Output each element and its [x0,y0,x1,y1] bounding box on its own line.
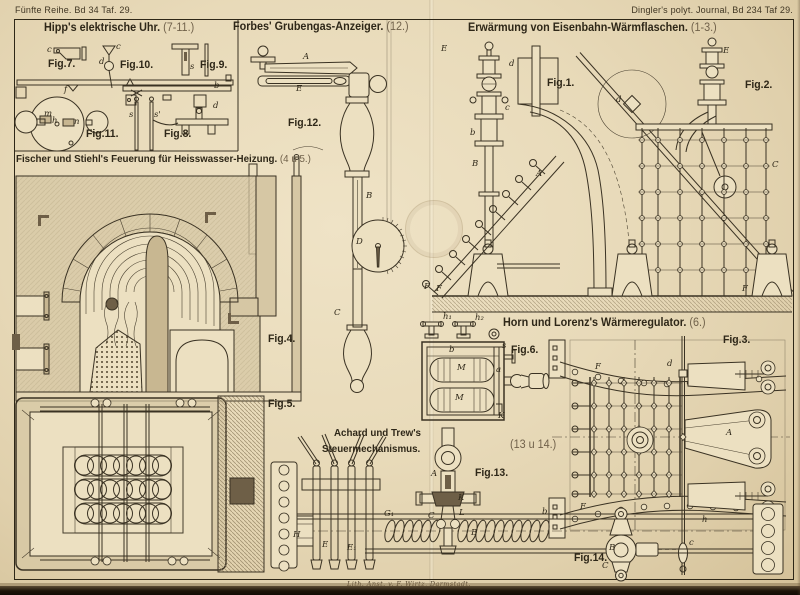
part-label: F [595,363,601,372]
header-series: Fünfte Reihe. Bd 34 Taf. 29. [15,5,133,15]
part-label: s [502,342,506,351]
fig11-drawing [15,97,108,151]
section-title-erwaermung: Erwärmung von Eisenbahn-Wärmflaschen. (1… [468,22,717,34]
part-label: F [424,283,430,292]
part-label: f [64,86,67,95]
fig3-label: Fig.3. [723,334,750,346]
part-label: b [470,129,475,138]
fig4-label: Fig.4. [268,333,295,345]
section-title-achard-line1: Achard und Trew's [334,428,421,439]
part-label: A [431,470,437,479]
fig13-label: Fig.13. [475,467,508,479]
part-label: B [366,192,372,201]
part-label: A [536,170,542,179]
section-title-horn: Horn und Lorenz's Wärmeregulator. (6.) [503,317,706,329]
part-label: s' [154,111,161,120]
page-edge-shadow [0,586,800,595]
part-label: E [296,85,302,94]
section-title-fischer: Fischer und Stiehl's Feuerung für Heissw… [16,154,311,165]
part-label: B [471,529,477,538]
fig1-label: Fig.1. [547,77,574,89]
section-title-forbes: Forbes' Grubengas-Anzeiger. (12.) [233,21,409,33]
part-label: h [702,516,707,525]
part-label: C [772,161,779,170]
part-label: A [303,53,309,62]
part-label: d [616,96,621,105]
fig12-label: Fig.12. [288,117,321,129]
part-label: d [213,102,218,111]
section-ref-achard: (13 u 14.) [510,439,556,451]
section-title-achard-line2: Steuermechanismus. [322,444,420,455]
part-label: d [509,60,514,69]
part-label: b [542,508,547,517]
part-label: C [334,309,341,318]
part-label: h₁ [443,313,452,322]
part-label: F [436,285,442,294]
part-label: C [428,512,435,521]
part-label: h [52,117,57,126]
part-label: c [47,46,52,55]
scanned-plate-page: Fünfte Reihe. Bd 34 Taf. 29. Dingler's p… [0,0,800,595]
part-label: E [322,541,328,550]
part-label: G₁ [384,510,394,519]
part-label: E [723,47,729,56]
header-journal: Dingler's polyt. Journal, Bd 234 Taf 29. [631,5,793,15]
part-label: d [667,360,672,369]
part-label: s [129,111,133,120]
fig5-label: Fig.5. [268,398,295,410]
part-label: h₂ [475,314,484,323]
section-title-hipp: Hipp's elektrische Uhr. (7-11.) [44,22,194,34]
part-label: s [190,63,194,72]
part-label: K [458,494,464,503]
part-label: H [293,531,300,540]
part-label: A [726,429,732,438]
part-label: c [505,104,510,113]
part-label: E [441,45,447,54]
part-label: m [44,110,52,119]
fig8-drawing [131,90,228,150]
part-label: M [457,364,466,373]
part-label: F [580,503,586,512]
fig1-drawing [423,42,633,298]
fig2-label: Fig.2. [745,79,772,91]
part-label: c [689,539,694,548]
fig6-label: Fig.6. [511,344,538,356]
fig10-drawing [103,46,115,88]
fig6-drawing [421,322,550,421]
fig4-drawing [12,176,301,401]
part-label: B [472,160,478,169]
plate-artwork [0,0,800,595]
fig11-label: Fig.11. [86,128,119,140]
part-label: D [356,238,363,247]
part-label: M [455,394,464,403]
part-label: n [74,118,79,127]
part-label: c [116,43,121,52]
part-label: a [496,366,501,375]
part-label: K [498,412,504,421]
fig7-label: Fig.7. [48,58,75,70]
fig2-drawing [576,38,793,296]
part-label: E₁ [347,544,357,553]
part-label: L [459,509,465,518]
fig5-drawing [16,396,289,572]
erwaermung-floor [432,296,792,312]
part-label: C [602,562,609,571]
fig8-label: Fig.8. [164,128,191,140]
part-label: b [214,82,219,91]
part-label: B [609,544,615,553]
fig9-label: Fig.9. [200,59,227,71]
part-label: d [99,58,104,67]
part-label: F [742,285,748,294]
part-label: b [449,346,454,355]
fig10-label: Fig.10. [120,59,153,71]
